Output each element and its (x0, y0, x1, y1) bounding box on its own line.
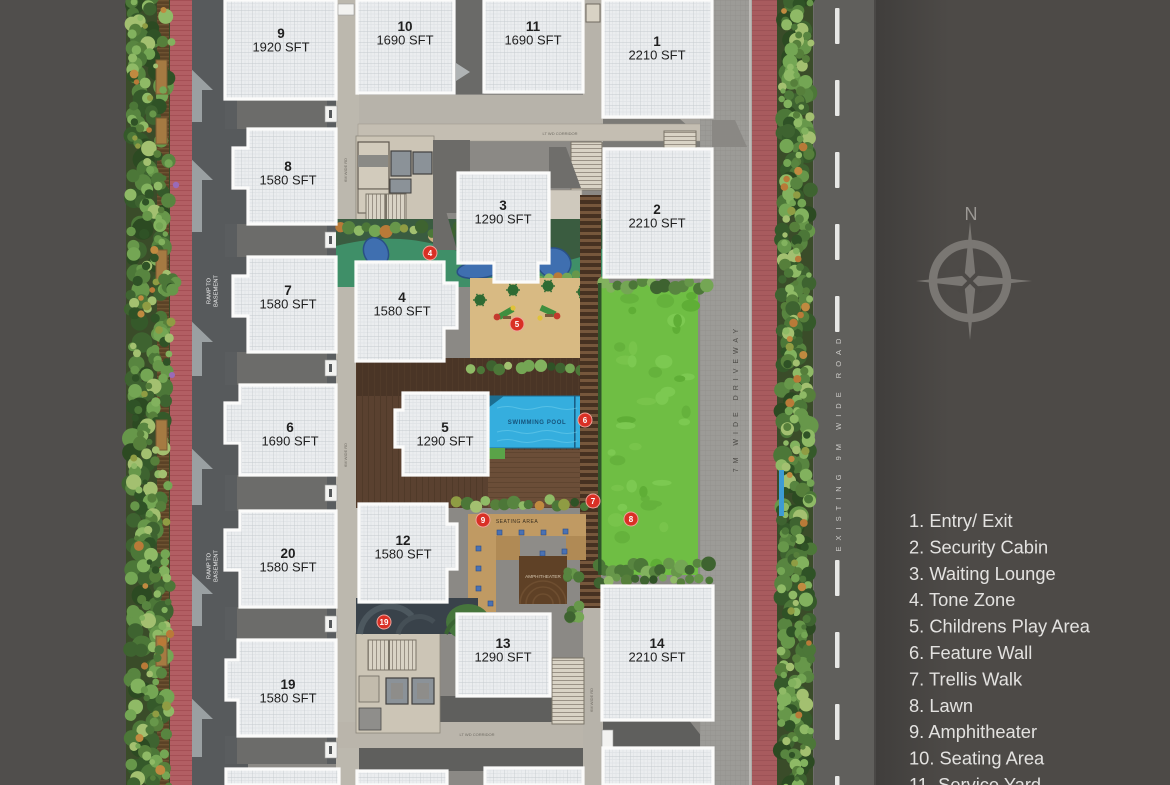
svg-text:1690 SFT: 1690 SFT (261, 434, 318, 449)
svg-text:6: 6 (583, 416, 588, 425)
svg-text:LT WD CORRIDOR: LT WD CORRIDOR (460, 732, 495, 737)
svg-text:6M WIDE RD: 6M WIDE RD (343, 158, 348, 182)
svg-text:7M WIDE DRIVEWAY: 7M WIDE DRIVEWAY (733, 324, 740, 472)
svg-text:1690 SFT: 1690 SFT (504, 33, 561, 48)
svg-text:7. Trellis Walk: 7. Trellis Walk (909, 668, 1023, 689)
svg-text:6. Feature Wall: 6. Feature Wall (909, 642, 1032, 663)
svg-text:6M WIDE RD: 6M WIDE RD (343, 443, 348, 467)
svg-text:RAMP TO: RAMP TO (207, 277, 213, 304)
svg-text:1580 SFT: 1580 SFT (259, 560, 316, 575)
svg-text:N: N (965, 204, 978, 224)
svg-text:1580 SFT: 1580 SFT (373, 304, 430, 319)
svg-text:1690 SFT: 1690 SFT (376, 33, 433, 48)
svg-text:19: 19 (380, 618, 389, 627)
svg-text:BASEMENT: BASEMENT (214, 550, 220, 582)
svg-text:1920 SFT: 1920 SFT (252, 40, 309, 55)
svg-text:SEATING AREA: SEATING AREA (496, 519, 538, 525)
svg-text:1580 SFT: 1580 SFT (259, 691, 316, 706)
svg-text:RAMP TO: RAMP TO (207, 552, 213, 579)
svg-text:BASEMENT: BASEMENT (214, 275, 220, 307)
svg-text:1580 SFT: 1580 SFT (259, 173, 316, 188)
svg-text:5: 5 (515, 320, 520, 329)
svg-text:2210 SFT: 2210 SFT (628, 48, 685, 63)
svg-text:1290 SFT: 1290 SFT (474, 650, 531, 665)
svg-text:1580 SFT: 1580 SFT (259, 297, 316, 312)
svg-text:9: 9 (481, 516, 486, 525)
svg-text:1. Entry/ Exit: 1. Entry/ Exit (909, 510, 1013, 531)
svg-text:4. Tone Zone: 4. Tone Zone (909, 589, 1015, 610)
svg-text:EXISTING 9M WIDE ROAD: EXISTING 9M WIDE ROAD (834, 333, 843, 552)
svg-text:2. Security Cabin: 2. Security Cabin (909, 536, 1048, 557)
svg-text:7: 7 (591, 497, 596, 506)
svg-text:1580 SFT: 1580 SFT (374, 547, 431, 562)
svg-text:AMPHITHEATER: AMPHITHEATER (525, 574, 561, 579)
svg-text:3. Waiting Lounge: 3. Waiting Lounge (909, 563, 1056, 584)
svg-text:10. Seating Area: 10. Seating Area (909, 748, 1045, 769)
svg-text:4: 4 (428, 249, 433, 258)
svg-text:1290 SFT: 1290 SFT (474, 212, 531, 227)
svg-text:8. Lawn: 8. Lawn (909, 695, 973, 716)
svg-text:LT WD CORRIDOR: LT WD CORRIDOR (543, 131, 578, 136)
svg-text:1290 SFT: 1290 SFT (416, 434, 473, 449)
svg-text:6M WIDE RD: 6M WIDE RD (589, 688, 594, 712)
svg-text:9. Amphitheater: 9. Amphitheater (909, 721, 1037, 742)
svg-text:2210 SFT: 2210 SFT (628, 216, 685, 231)
svg-text:2210 SFT: 2210 SFT (628, 650, 685, 665)
svg-text:5. Childrens Play Area: 5. Childrens Play Area (909, 616, 1091, 637)
svg-text:SWIMMING POOL: SWIMMING POOL (508, 420, 566, 426)
svg-text:8: 8 (629, 515, 634, 524)
svg-text:11. Service Yard: 11. Service Yard (909, 774, 1041, 785)
